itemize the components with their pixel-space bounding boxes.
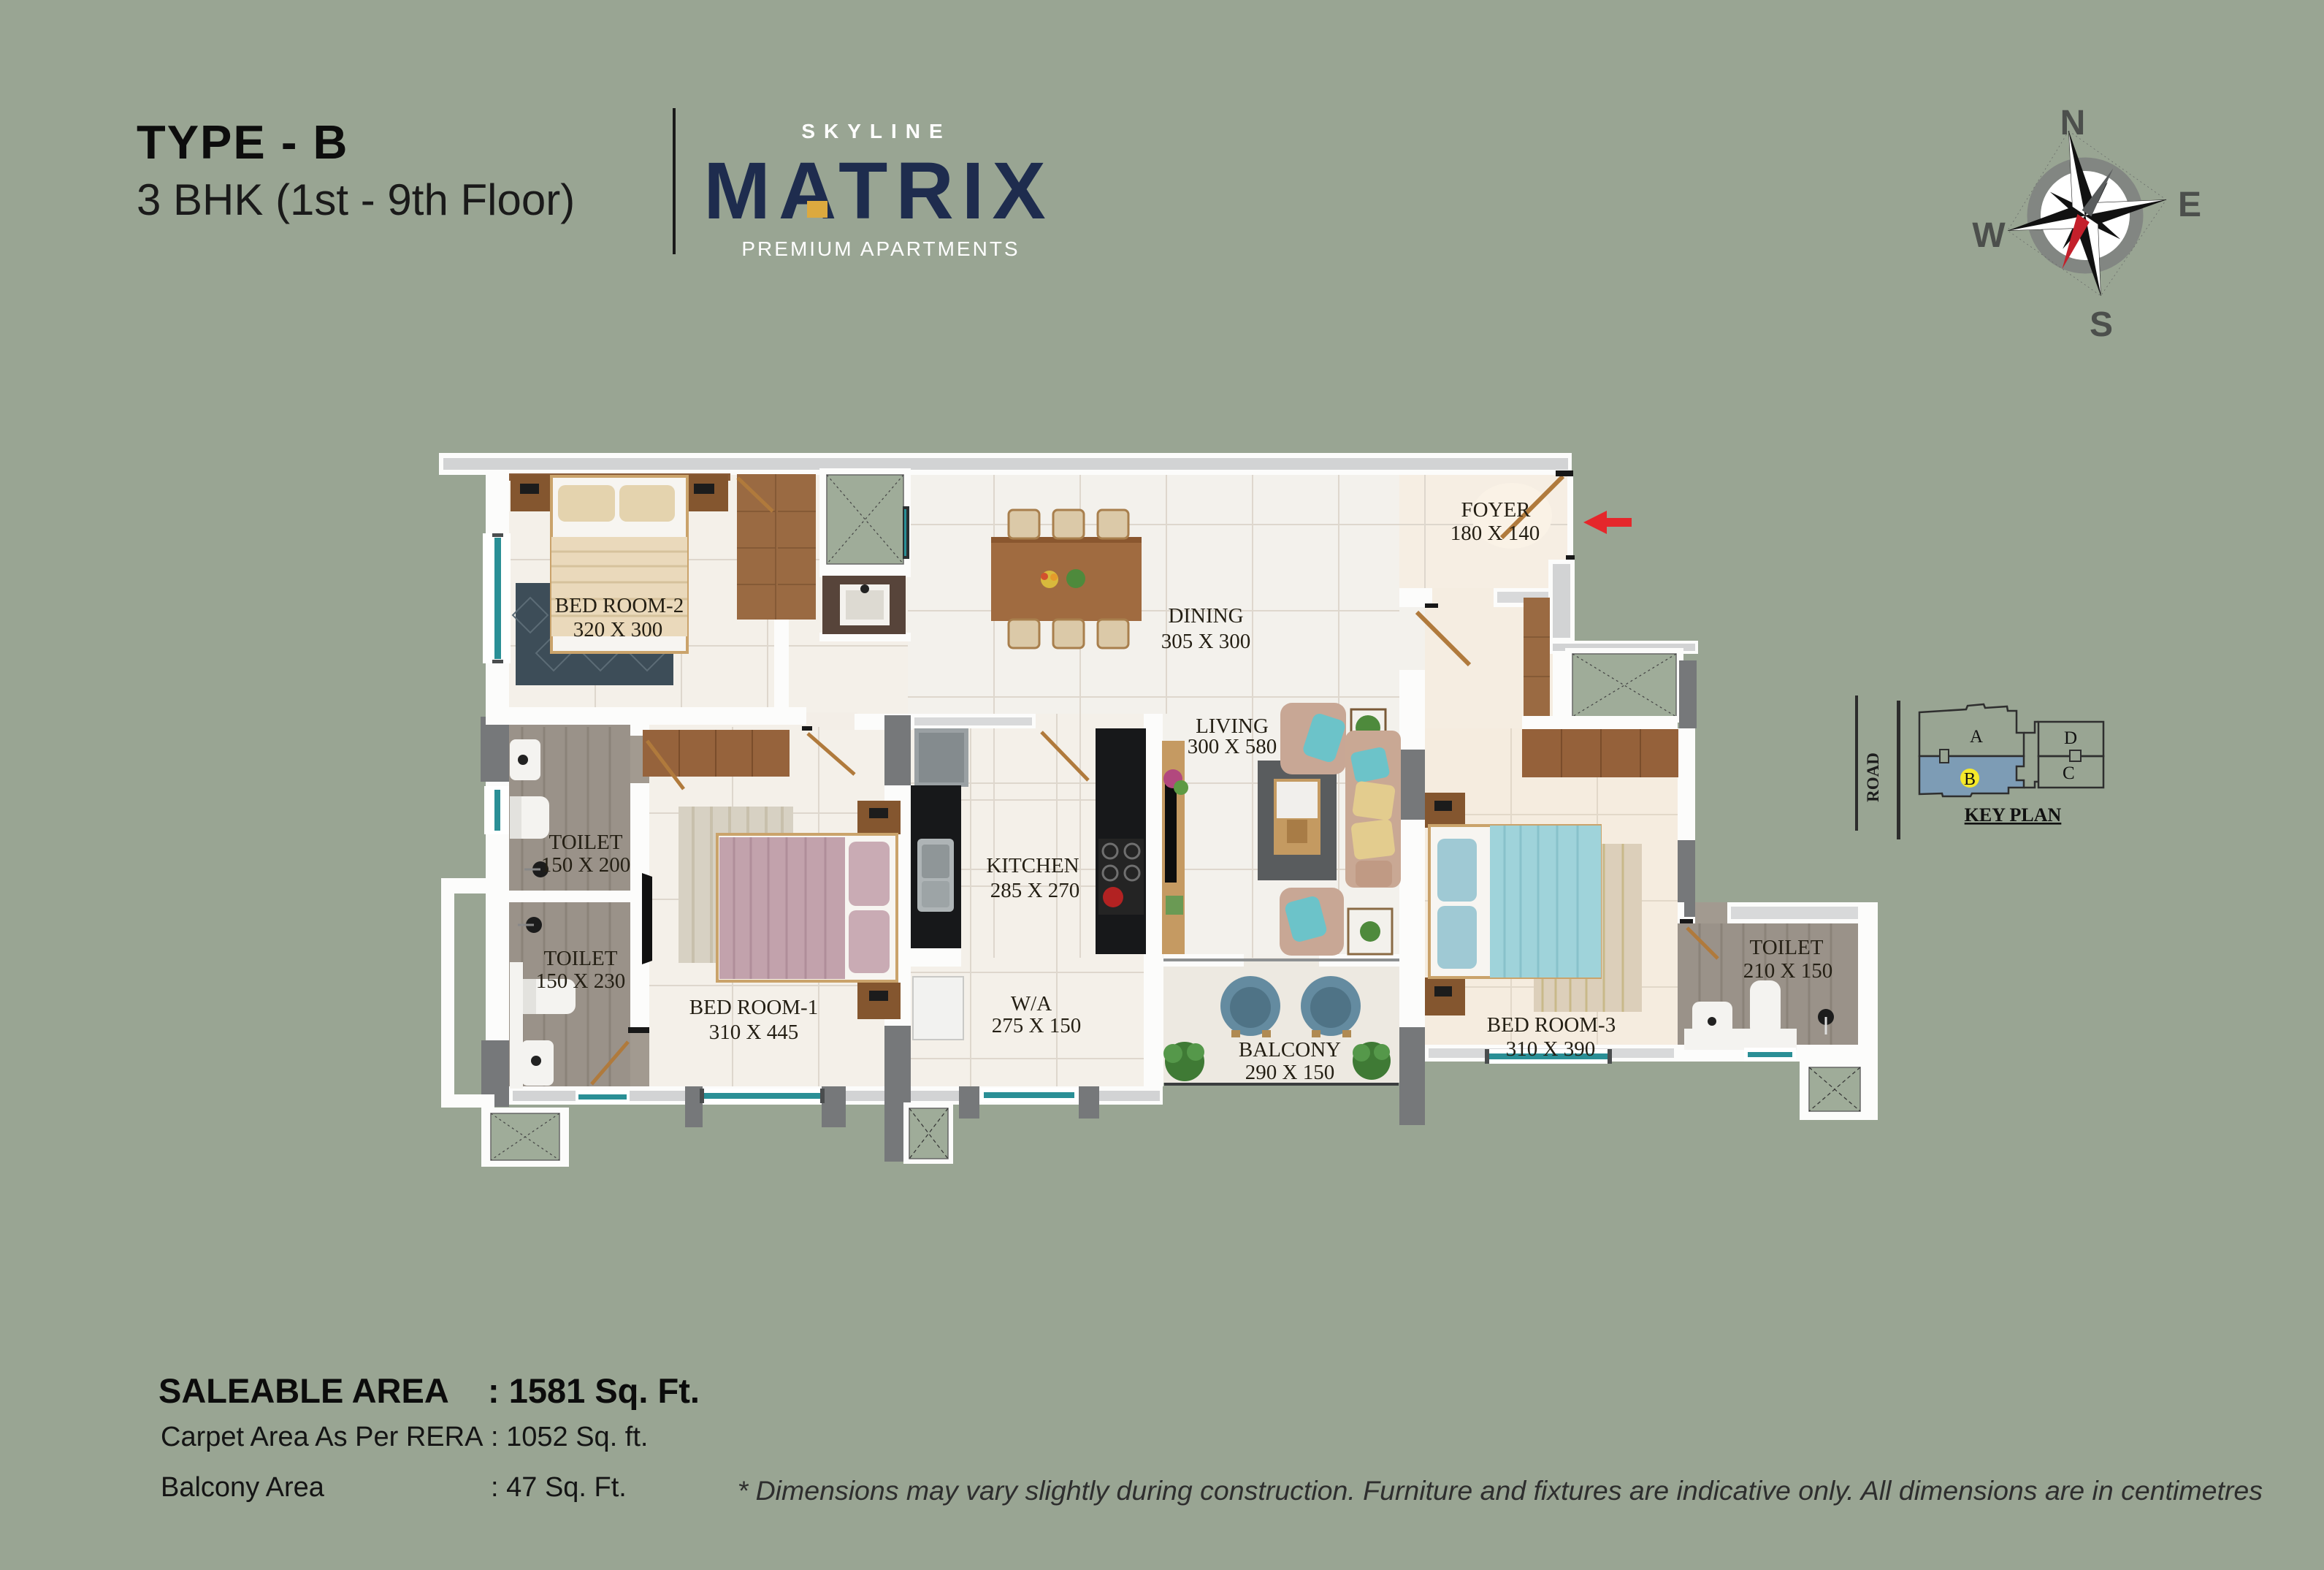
svg-text:KITCHEN: KITCHEN xyxy=(986,854,1079,877)
svg-text:TOILET: TOILET xyxy=(1750,936,1824,959)
svg-text:TOILET: TOILET xyxy=(549,831,623,854)
svg-text:A: A xyxy=(1970,727,1983,747)
svg-text:: 1052 Sq. ft.: : 1052 Sq. ft. xyxy=(491,1422,648,1452)
svg-text:E: E xyxy=(2178,186,2201,224)
svg-text:SALEABLE AREA: SALEABLE AREA xyxy=(158,1371,449,1410)
svg-text:MATRIX: MATRIX xyxy=(703,146,1053,236)
svg-text:210 X 150: 210 X 150 xyxy=(1743,959,1832,983)
svg-text:180 X 140: 180 X 140 xyxy=(1450,522,1540,545)
svg-text:D: D xyxy=(2064,728,2077,748)
svg-text:KEY PLAN: KEY PLAN xyxy=(1965,804,2062,826)
svg-text:290 X 150: 290 X 150 xyxy=(1245,1061,1334,1084)
svg-text:275 X 150: 275 X 150 xyxy=(992,1014,1081,1037)
svg-text:285 X 270: 285 X 270 xyxy=(990,879,1079,902)
svg-text:310 X 445: 310 X 445 xyxy=(709,1021,798,1044)
svg-text:W: W xyxy=(1972,216,2006,255)
svg-text:B: B xyxy=(1964,770,1976,789)
svg-text:150 X 200: 150 X 200 xyxy=(541,853,630,877)
svg-text:: 1581 Sq. Ft.: : 1581 Sq. Ft. xyxy=(488,1371,700,1410)
svg-text:SKYLINE: SKYLINE xyxy=(801,120,951,142)
svg-text:ROAD: ROAD xyxy=(1864,752,1882,802)
svg-text:150 X 230: 150 X 230 xyxy=(536,969,625,993)
svg-text:W/A: W/A xyxy=(1011,992,1052,1015)
svg-text:* Dimensions may vary slightly: * Dimensions may vary slightly during co… xyxy=(738,1475,2263,1506)
svg-text:BED ROOM-3: BED ROOM-3 xyxy=(1487,1013,1616,1037)
svg-text:Carpet Area As Per RERA: Carpet Area As Per RERA xyxy=(161,1422,483,1452)
svg-text:C: C xyxy=(2063,763,2075,783)
svg-text:BED ROOM-2: BED ROOM-2 xyxy=(555,594,684,617)
svg-text:FOYER: FOYER xyxy=(1461,498,1531,522)
svg-text:TYPE - B: TYPE - B xyxy=(137,115,348,169)
svg-text:305 X 300: 305 X 300 xyxy=(1161,630,1250,653)
svg-text:Balcony Area: Balcony Area xyxy=(161,1472,325,1503)
svg-text:BED ROOM-1: BED ROOM-1 xyxy=(689,996,818,1019)
svg-text:BALCONY: BALCONY xyxy=(1239,1038,1341,1062)
svg-text:S: S xyxy=(2090,305,2113,344)
svg-text:3 BHK (1st - 9th Floor): 3 BHK (1st - 9th Floor) xyxy=(137,175,575,224)
svg-text:TOILET: TOILET xyxy=(544,947,618,970)
svg-text:PREMIUM APARTMENTS: PREMIUM APARTMENTS xyxy=(741,237,1020,260)
svg-text:N: N xyxy=(2060,104,2086,142)
svg-text:300 X 580: 300 X 580 xyxy=(1188,735,1277,758)
svg-text:310 X 390: 310 X 390 xyxy=(1506,1037,1595,1061)
svg-text:320 X 300: 320 X 300 xyxy=(573,618,662,641)
svg-text:: 47 Sq. Ft.: : 47 Sq. Ft. xyxy=(491,1472,627,1503)
svg-text:DINING: DINING xyxy=(1168,604,1243,628)
